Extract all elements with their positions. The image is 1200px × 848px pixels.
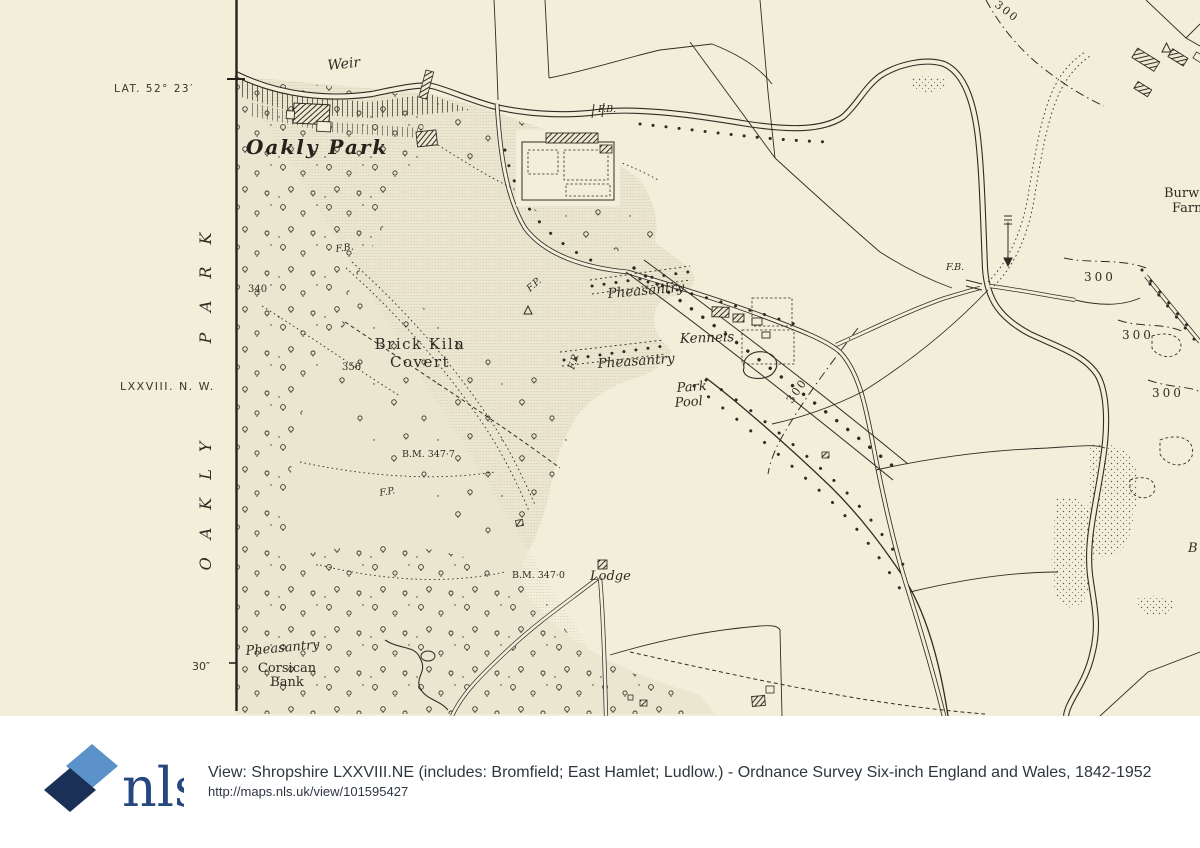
map-label-brick-kiln: Brick Kiln [375,335,466,353]
lodge-building [598,560,607,569]
map-label-clipped: B [1187,541,1198,556]
margin-vertical-label-oakly: OAKLY [196,424,215,571]
map-label-oakly-park: Oakly Park [246,135,388,159]
map-label-contour-300: 300 [1152,386,1184,400]
map-view-title: View: Shropshire LXXVIII.NE (includes: B… [208,763,1152,784]
map-label-benchmark: B.M. 347·7 [402,449,455,460]
formal-gardens [516,130,620,206]
map-label-benchmark: B.M. 347·0 [512,570,565,581]
map-label-fb: F.B. [597,104,616,115]
map-label-spot-height: 356 [342,362,361,373]
seconds-label: 30″ [192,660,210,673]
footer-text-block: View: Shropshire LXXVIII.NE (includes: B… [208,763,1152,801]
map-label-covert: Covert [390,353,450,371]
map-label-corsican-bank: Corsican [258,661,317,676]
maps-viewer-page: Weir Oakly Park F.B. F.B. 340 356 Brick … [0,0,1200,848]
map-label-burway-farm: Burw [1164,186,1199,201]
map-label-spot-height: 340 [248,284,267,295]
map-label-contour-300: 300 [1122,328,1154,342]
map-label-park-pool: Park [675,379,707,396]
map-label-kennels: Kennels [679,329,735,347]
sheet-number-label: LXXVIII. N. W. [120,380,215,393]
map-label-contour-300: 300 [1084,270,1116,284]
latitude-label: LAT. 52° 23′ [114,83,194,95]
map-label-fb: F.B. [945,262,964,273]
margin-vertical-label-park: PARK [196,211,215,345]
map-viewport[interactable]: Weir Oakly Park F.B. F.B. 340 356 Brick … [0,0,1200,716]
footer-bar: nls View: Shropshire LXXVIII.NE (include… [0,716,1200,848]
map-label-burway-farm: Farm [1172,201,1200,216]
map-label-corsican-bank: Bank [270,675,304,690]
map-label-lodge: Lodge [589,569,631,584]
map-view-url: http://maps.nls.uk/view/101595427 [208,784,1152,801]
nls-logo[interactable]: nls [34,740,184,824]
nls-logo-text: nls [122,756,184,819]
map-label-park-pool: Pool [673,394,703,411]
historic-os-map: Weir Oakly Park F.B. F.B. 340 356 Brick … [0,0,1200,716]
